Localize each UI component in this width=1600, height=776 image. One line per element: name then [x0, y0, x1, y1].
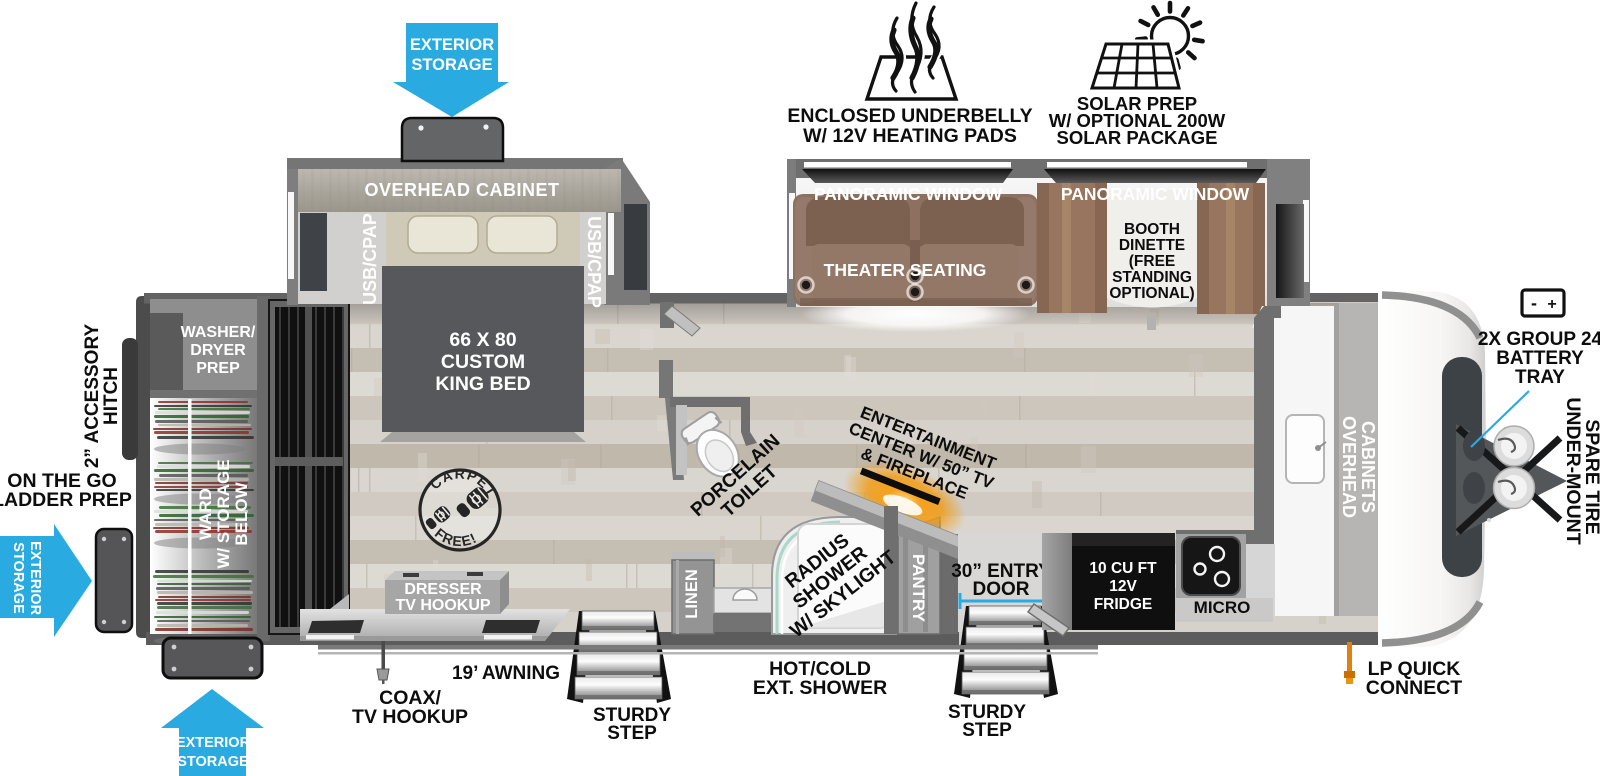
svg-text:ENCLOSED UNDERBELLYW/ 12V HEAT: ENCLOSED UNDERBELLYW/ 12V HEATING PADS	[787, 105, 1032, 147]
svg-text:OVERHEAD CABINET: OVERHEAD CABINET	[364, 180, 559, 200]
svg-text:UNDER-MOUNT: UNDER-MOUNT	[1562, 397, 1584, 544]
svg-text:PANORAMIC WINDOW: PANORAMIC WINDOW	[1061, 184, 1250, 204]
svg-text:USB/CPAP: USB/CPAP	[360, 213, 380, 305]
svg-text:HOT/COLDEXT. SHOWER: HOT/COLDEXT. SHOWER	[753, 658, 887, 699]
svg-text:19’ AWNING: 19’ AWNING	[452, 663, 560, 684]
svg-text:66 X 80CUSTOMKING BED: 66 X 80CUSTOMKING BED	[435, 329, 530, 395]
svg-text:CABINETSOVERHEAD: CABINETSOVERHEAD	[1339, 416, 1378, 518]
svg-text:USB/CPAP: USB/CPAP	[584, 216, 604, 308]
svg-text:LINEN: LINEN	[683, 569, 701, 619]
svg-text:DRESSERTV HOOKUP: DRESSERTV HOOKUP	[395, 581, 490, 614]
svg-text:EXTERIORSTORAGE: EXTERIORSTORAGE	[10, 541, 43, 616]
svg-text:ON THE GOLADDER PREP: ON THE GOLADDER PREP	[0, 470, 132, 511]
svg-text:THEATER SEATING: THEATER SEATING	[824, 260, 987, 280]
svg-text:PANORAMIC WINDOW: PANORAMIC WINDOW	[814, 184, 1003, 204]
svg-text:SPARE TIRE: SPARE TIRE	[1581, 419, 1600, 535]
svg-text:+: +	[1547, 296, 1556, 313]
svg-text:PANTRY: PANTRY	[909, 554, 928, 623]
svg-text:LP QUICKCONNECT: LP QUICKCONNECT	[1366, 658, 1463, 699]
svg-text:-: -	[1531, 293, 1537, 313]
svg-text:MICRO: MICRO	[1194, 598, 1251, 617]
